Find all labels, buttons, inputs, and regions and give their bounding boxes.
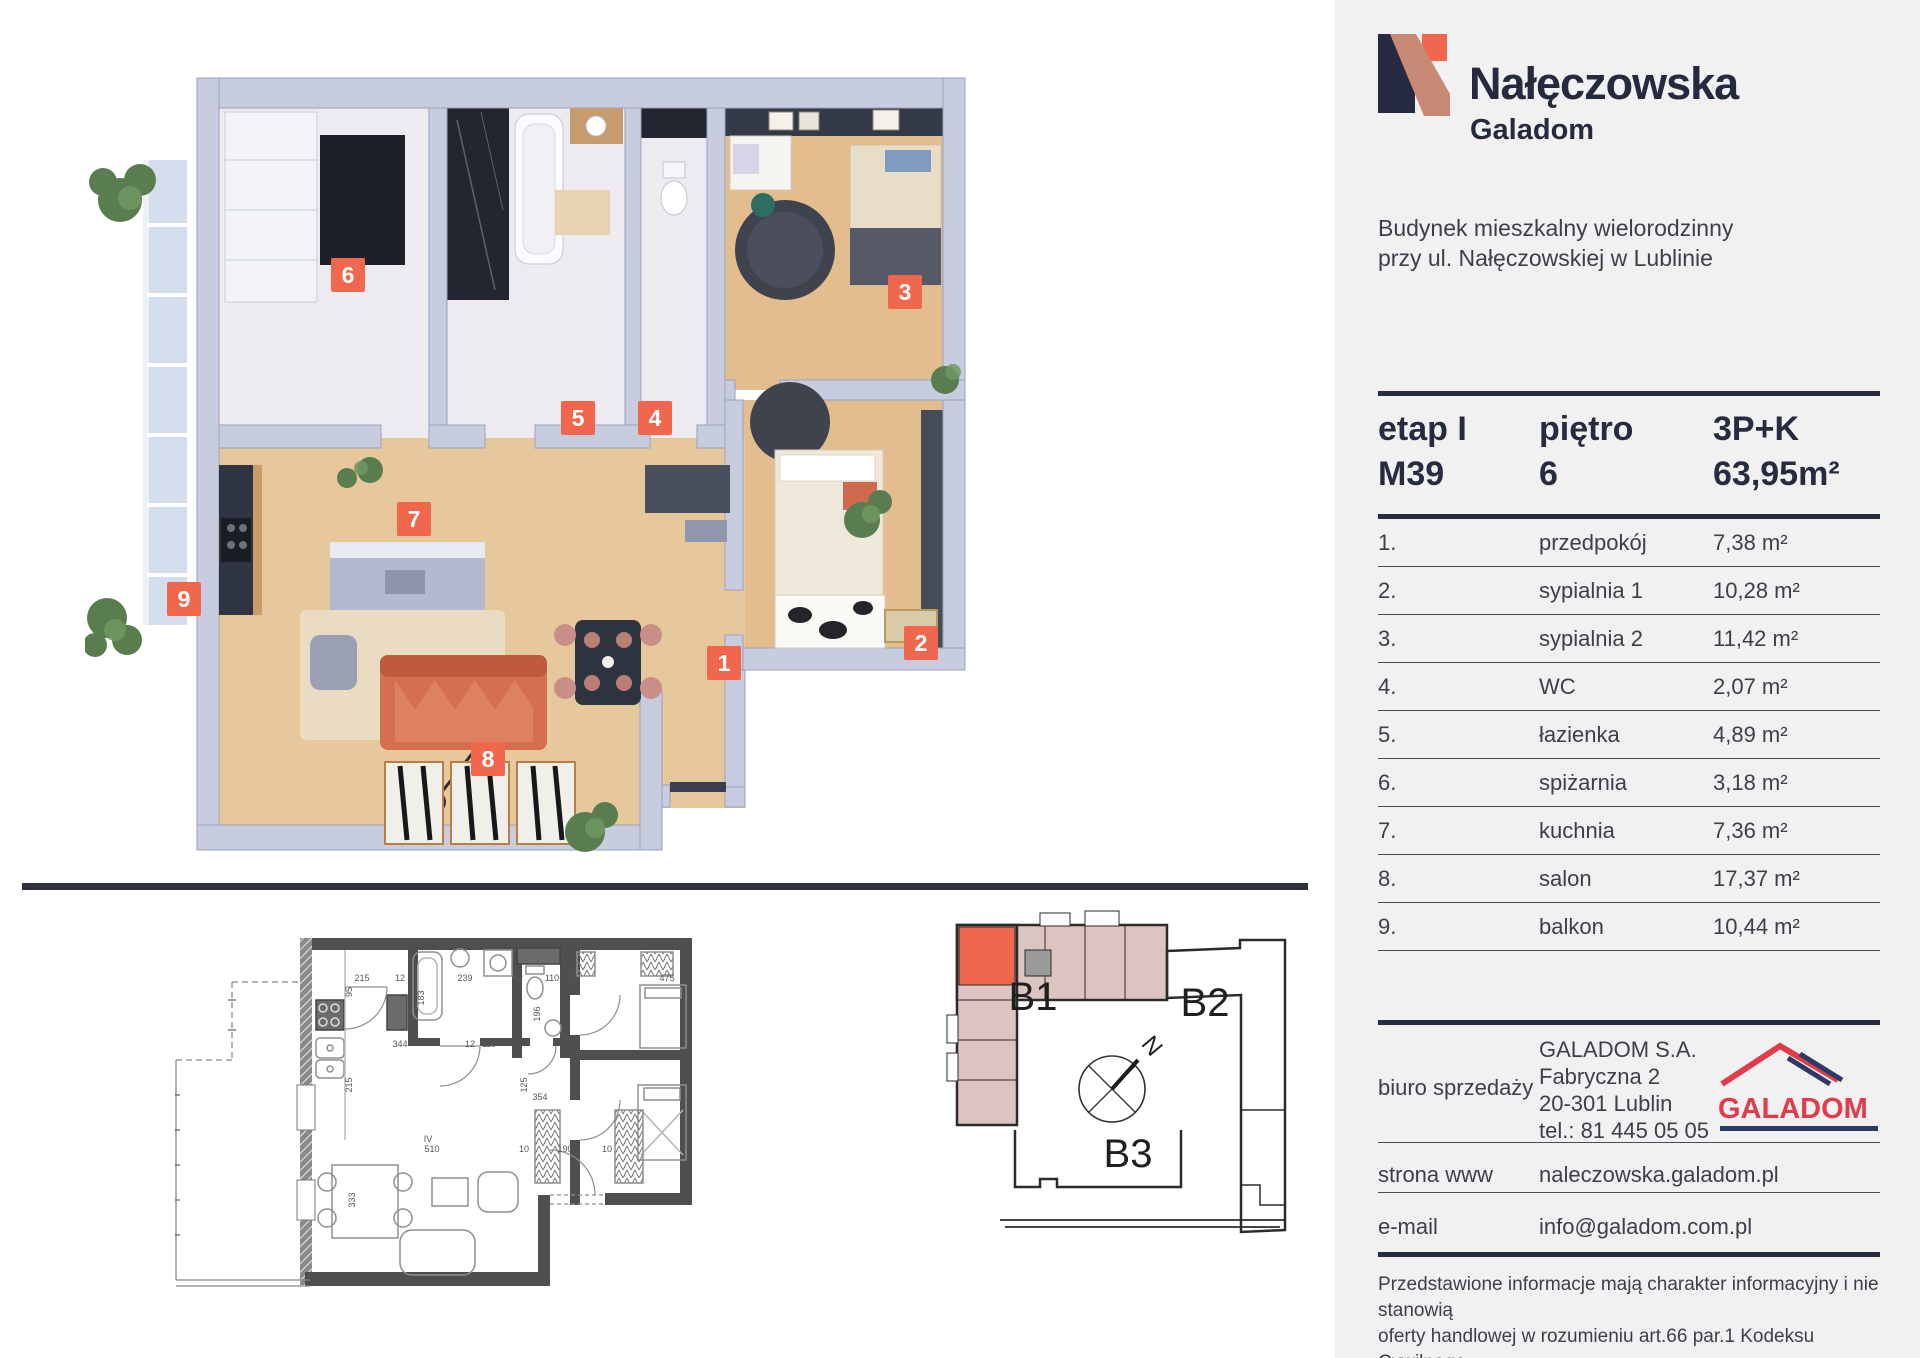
disclaimer-line1: Przedstawione informacje mają charakter … xyxy=(1378,1272,1888,1324)
highlighted-unit xyxy=(959,927,1015,985)
total-area: 63,95m² xyxy=(1713,452,1880,497)
offer-card: 123456789 xyxy=(0,0,1920,1358)
room-badge-number: 7 xyxy=(408,506,421,532)
project-title: Nałęczowska xyxy=(1469,58,1738,110)
section-divider xyxy=(22,883,1308,890)
floor-label: piętro xyxy=(1539,407,1713,452)
building-description: Budynek mieszkalny wielorodzinny przy ul… xyxy=(1378,213,1733,273)
room-number: 8. xyxy=(1378,866,1539,892)
room-area: 17,37 m² xyxy=(1713,866,1880,892)
room-name: sypialnia 2 xyxy=(1539,626,1713,652)
dimension-label: 215 xyxy=(344,1077,354,1092)
room-badge-number: 2 xyxy=(915,630,928,656)
fixtures-2d xyxy=(316,948,686,1275)
dimension-label: 344 xyxy=(392,1039,407,1049)
room-name: łazienka xyxy=(1539,722,1713,748)
room-area: 4,89 m² xyxy=(1713,722,1880,748)
info-panel: Nałęczowska Galadom Budynek mieszkalny w… xyxy=(1335,0,1920,1358)
balcony-9 xyxy=(143,160,187,625)
rule-bottom xyxy=(1378,1252,1880,1257)
stage-label: etap I xyxy=(1378,407,1539,452)
galadom-logo-text: GALADOM xyxy=(1718,1093,1868,1125)
brand-logo-icon xyxy=(1378,34,1450,116)
room-row: 7.kuchnia7,36 m² xyxy=(1378,807,1880,855)
dimension-label: 354 xyxy=(532,1092,547,1102)
dimension-label: 10 xyxy=(602,1144,612,1154)
room-area: 7,38 m² xyxy=(1713,530,1880,556)
dimension-label: 110 xyxy=(482,1039,496,1049)
room-name: spiżarnia xyxy=(1539,770,1713,796)
room-number: 9. xyxy=(1378,914,1539,940)
site-block-label: N xyxy=(1136,1031,1168,1062)
dimension-label: 12 xyxy=(465,1039,475,1049)
dimension-label: 183 xyxy=(416,990,426,1005)
company-phone: tel.: 81 445 05 05 xyxy=(1539,1117,1709,1144)
room-number: 4. xyxy=(1378,674,1539,700)
unit-header: etap I M39 piętro 6 3P+K 63,95m² xyxy=(1378,407,1880,497)
rule-thin-1 xyxy=(1378,1142,1880,1143)
room-name: kuchnia xyxy=(1539,818,1713,844)
room-number: 3. xyxy=(1378,626,1539,652)
site-block-label: B1 xyxy=(1009,975,1058,1019)
room-number: 7. xyxy=(1378,818,1539,844)
room-area: 3,18 m² xyxy=(1713,770,1880,796)
room-area: 7,36 m² xyxy=(1713,818,1880,844)
dimension-label: 510 xyxy=(424,1144,439,1154)
room-row: 1.przedpokój7,38 m² xyxy=(1378,519,1880,567)
building-description-line1: Budynek mieszkalny wielorodzinny xyxy=(1378,213,1733,243)
dimension-label: 239 xyxy=(457,973,472,983)
room-row: 4.WC2,07 m² xyxy=(1378,663,1880,711)
room-name: balkon xyxy=(1539,914,1713,940)
disclaimer: Przedstawione informacje mają charakter … xyxy=(1378,1272,1888,1358)
company-address: GALADOM S.A. Fabryczna 2 20-301 Lublin t… xyxy=(1539,1036,1709,1144)
rooms-table: 1.przedpokój7,38 m²2.sypialnia 110,28 m²… xyxy=(1378,519,1880,951)
dimension-label: 12 xyxy=(513,973,523,983)
room-number: 6. xyxy=(1378,770,1539,796)
room-badge-number: 3 xyxy=(899,279,912,305)
room-name: przedpokój xyxy=(1539,530,1713,556)
floor-plan-3d: 123456789 xyxy=(85,50,975,880)
room-area: 11,42 m² xyxy=(1713,626,1880,652)
dimension-label: 12 xyxy=(567,973,577,983)
dimension-label: 125 xyxy=(519,1077,529,1092)
email-link[interactable]: info@galadom.com.pl xyxy=(1539,1214,1752,1240)
room-name: sypialnia 1 xyxy=(1539,578,1713,604)
developer-title: Galadom xyxy=(1470,114,1594,147)
unit-number: M39 xyxy=(1378,452,1539,497)
building-description-line2: przy ul. Nałęczowskiej w Lublinie xyxy=(1378,243,1733,273)
room-name: salon xyxy=(1539,866,1713,892)
room-area: 10,28 m² xyxy=(1713,578,1880,604)
room-badge-number: 6 xyxy=(342,262,355,288)
site-block-label: B3 xyxy=(1104,1132,1153,1176)
office-label: biuro sprzedaży xyxy=(1378,1075,1533,1101)
room-area: 10,44 m² xyxy=(1713,914,1880,940)
room-number: 2. xyxy=(1378,578,1539,604)
room-row: 8.salon17,37 m² xyxy=(1378,855,1880,903)
dimension-label: 110 xyxy=(545,973,559,983)
room-area: 2,07 m² xyxy=(1713,674,1880,700)
rule-contact-top xyxy=(1378,1020,1880,1025)
dimension-label: IV xyxy=(424,1134,433,1144)
room-row: 2.sypialnia 110,28 m² xyxy=(1378,567,1880,615)
layout-type: 3P+K xyxy=(1713,407,1880,452)
balcony-2d xyxy=(175,982,310,1286)
room-row: 3.sypialnia 211,42 m² xyxy=(1378,615,1880,663)
room-number: 5. xyxy=(1378,722,1539,748)
pantry-6 xyxy=(225,112,317,302)
company-street: Fabryczna 2 xyxy=(1539,1063,1709,1090)
company-city: 20-301 Lublin xyxy=(1539,1090,1709,1117)
dimension-label: 475 xyxy=(659,973,674,983)
dimension-label: 10 xyxy=(519,1144,529,1154)
room-number: 1. xyxy=(1378,530,1539,556)
dimension-label: 333 xyxy=(347,1192,357,1207)
room-badge-number: 1 xyxy=(718,650,731,676)
wc-4 xyxy=(661,162,687,215)
room-name: WC xyxy=(1539,674,1713,700)
room-badge-number: 4 xyxy=(649,405,662,431)
galadom-logo: GALADOM xyxy=(1718,1038,1882,1136)
rule-top xyxy=(1378,391,1880,396)
room-badge-number: 5 xyxy=(572,405,585,431)
disclaimer-line2: oferty handlowej w rozumieniu art.66 par… xyxy=(1378,1324,1888,1358)
dimension-label: 215 xyxy=(354,973,369,983)
room-badge-number: 8 xyxy=(482,746,495,772)
floor-value: 6 xyxy=(1539,452,1713,497)
room-row: 9.balkon10,44 m² xyxy=(1378,903,1880,951)
email-label: e-mail xyxy=(1378,1214,1438,1240)
room-badge-number: 9 xyxy=(178,586,191,612)
floor-plan-2d: 2151223912110124759518319634412110215125… xyxy=(175,930,705,1295)
site-labels: B1B2B3N xyxy=(1009,975,1230,1176)
dimension-label: 12 xyxy=(395,973,405,983)
website-link[interactable]: naleczowska.galadom.pl xyxy=(1539,1162,1779,1188)
site-plan: B1B2B3N xyxy=(945,895,1325,1295)
company-name: GALADOM S.A. xyxy=(1539,1036,1709,1063)
website-label: strona www xyxy=(1378,1162,1493,1188)
compass xyxy=(1079,1056,1145,1122)
room-row: 6.spiżarnia3,18 m² xyxy=(1378,759,1880,807)
dimension-label: 196 xyxy=(532,1006,542,1021)
dimension-label: 190 xyxy=(557,1144,572,1154)
site-block-label: B2 xyxy=(1181,981,1230,1025)
room-row: 5.łazienka4,89 m² xyxy=(1378,711,1880,759)
dimension-label: 95 xyxy=(344,987,354,997)
rule-thin-2 xyxy=(1378,1192,1880,1193)
